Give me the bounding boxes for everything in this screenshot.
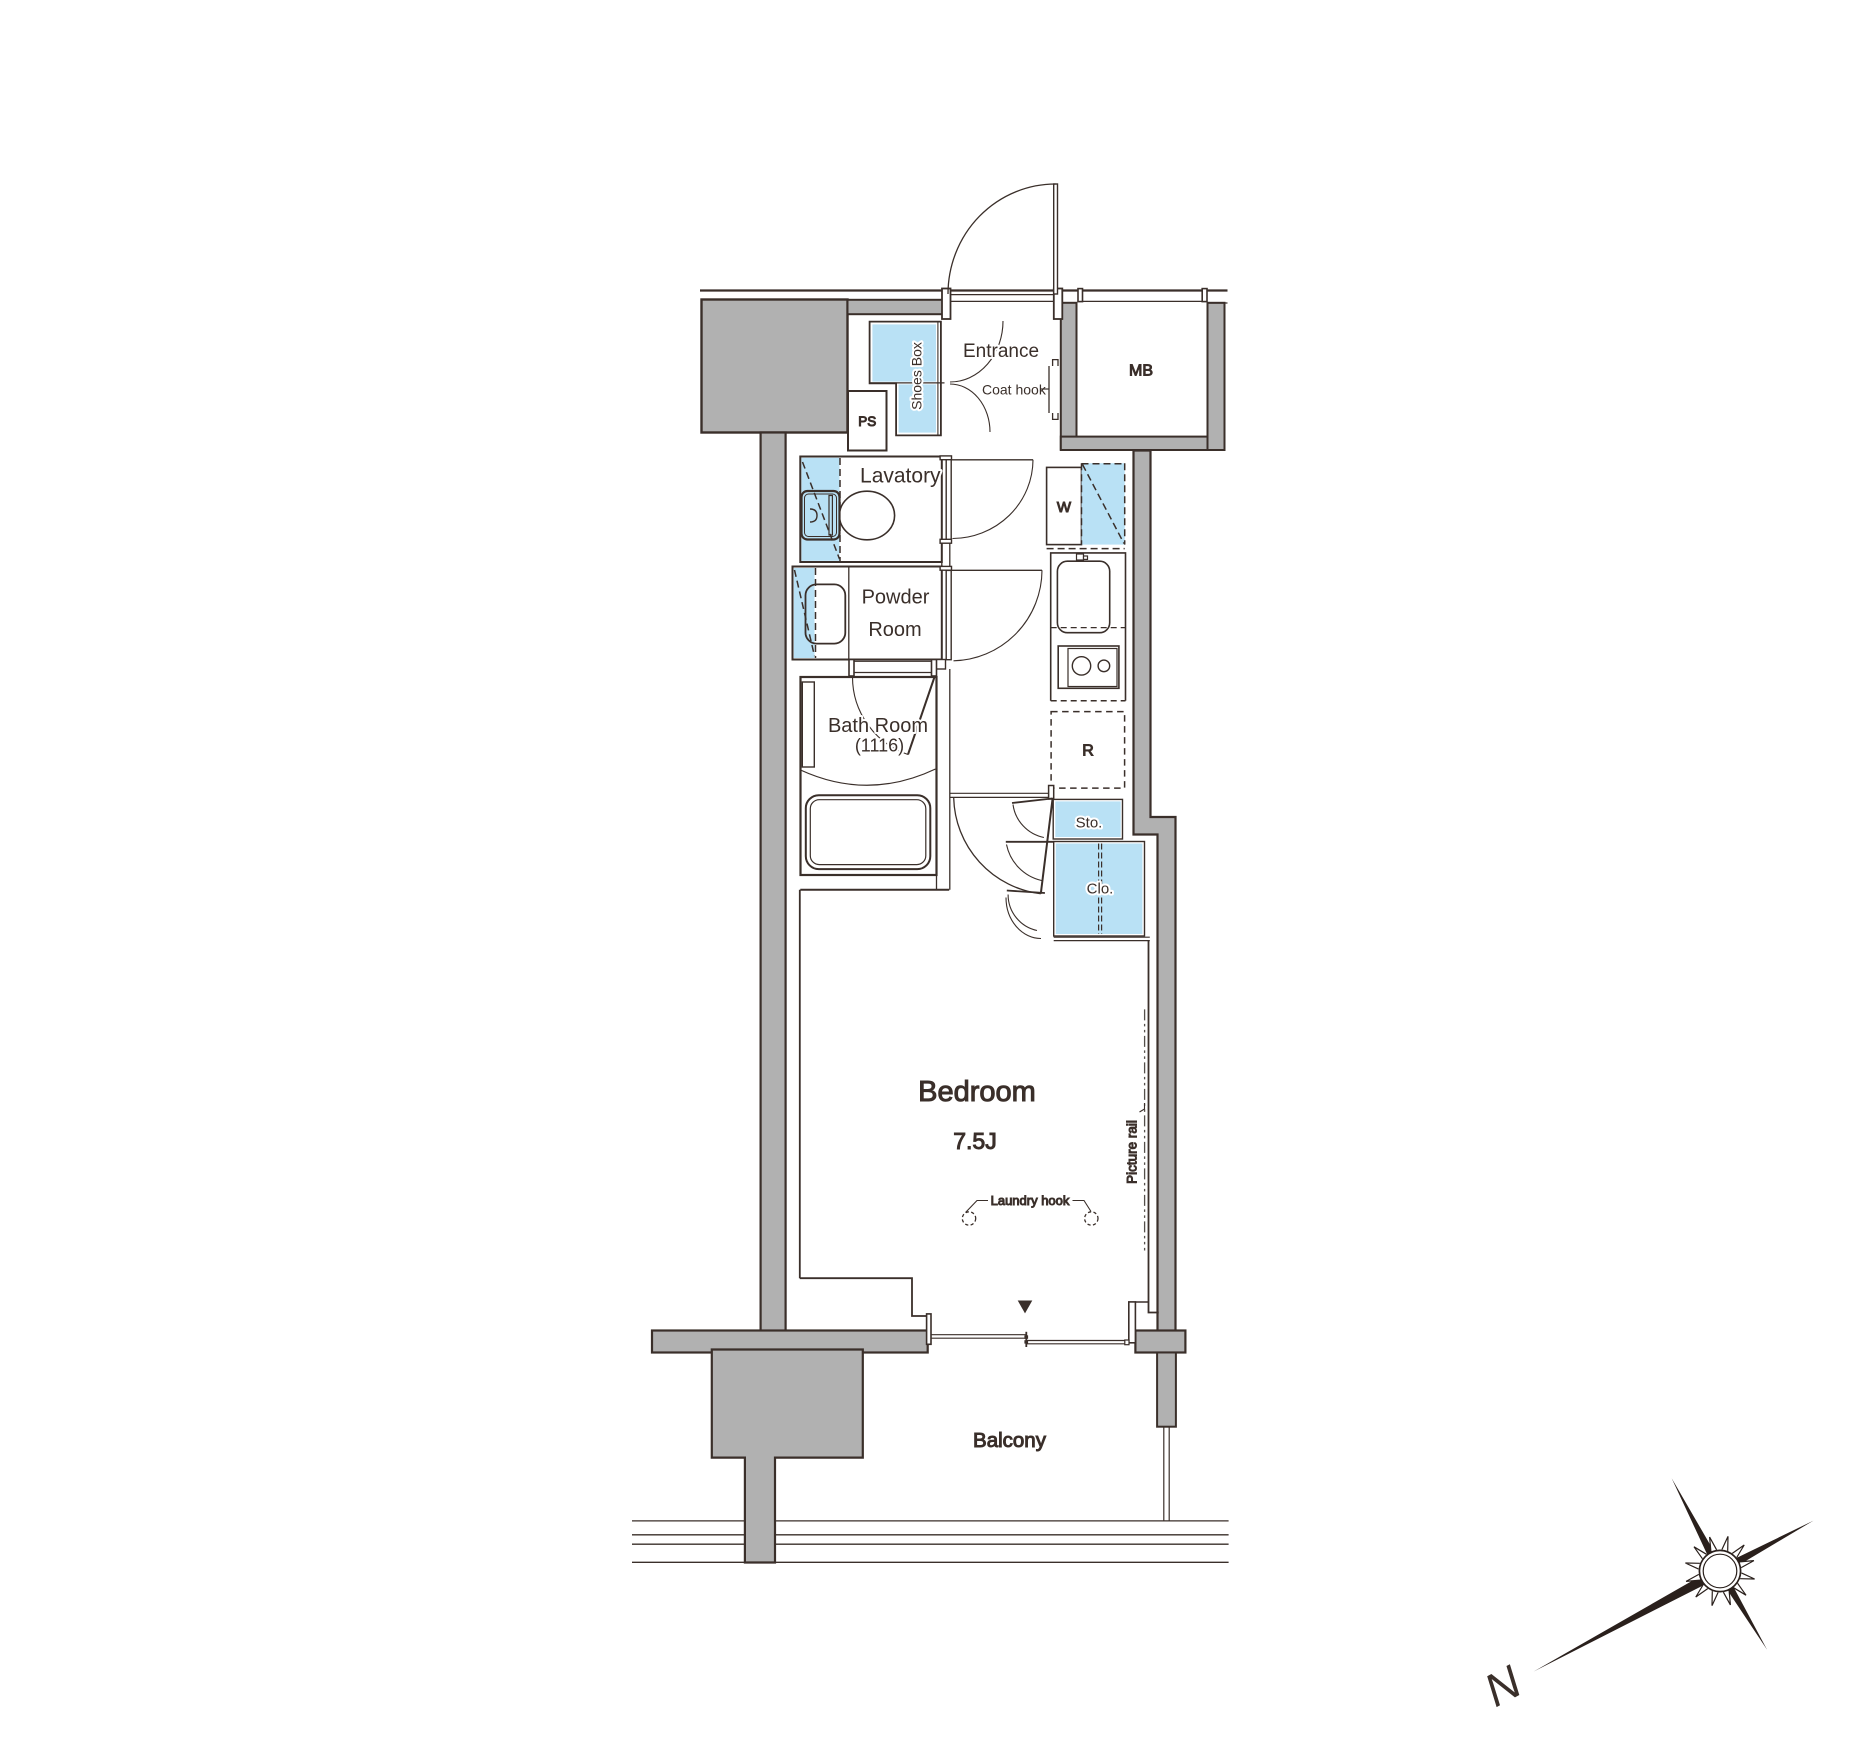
svg-text:Laundry hook: Laundry hook [991, 1193, 1070, 1208]
svg-text:PS: PS [858, 414, 876, 429]
svg-text:Bedroom: Bedroom [918, 1076, 1036, 1108]
svg-text:MB: MB [1129, 363, 1153, 380]
svg-text:Picture rail: Picture rail [1125, 1120, 1140, 1184]
svg-text:Clo.: Clo. [1087, 881, 1114, 898]
svg-text:R: R [1082, 743, 1094, 760]
svg-text:W: W [1057, 499, 1072, 516]
svg-text:Entrance: Entrance [963, 341, 1039, 362]
svg-text:Sto.: Sto. [1076, 815, 1103, 832]
svg-text:Room: Room [868, 619, 921, 641]
svg-text:Bath Room: Bath Room [828, 715, 928, 737]
svg-text:Coat hook: Coat hook [982, 381, 1047, 397]
svg-text:Lavatory: Lavatory [860, 465, 941, 488]
svg-text:(1116): (1116) [855, 736, 904, 756]
svg-text:Balcony: Balcony [973, 1429, 1047, 1452]
svg-text:N: N [1476, 1655, 1530, 1717]
svg-text:7.5J: 7.5J [953, 1128, 996, 1154]
svg-text:Shoes Box: Shoes Box [909, 342, 925, 410]
svg-text:Powder: Powder [862, 587, 930, 609]
